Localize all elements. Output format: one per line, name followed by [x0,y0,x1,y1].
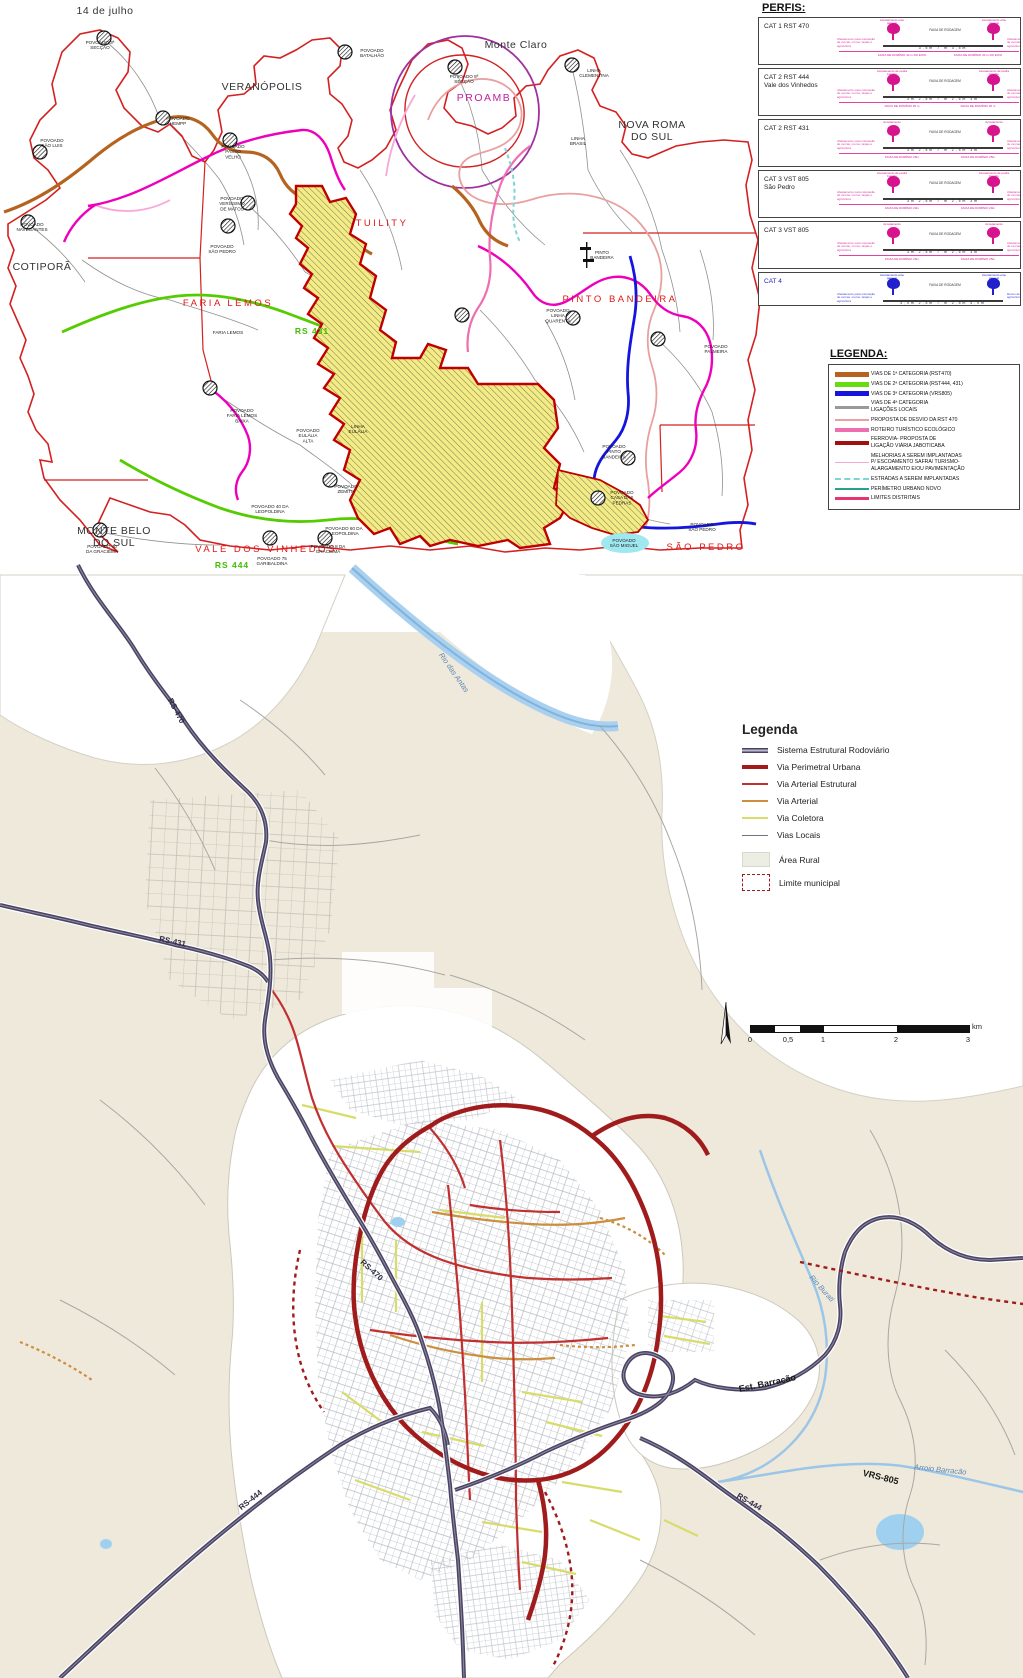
top-map [4,30,760,553]
map-label: POVOADOFARIA LEMOSBAIXA [227,408,257,423]
scale-tick: 0 [748,1035,752,1044]
bottom-legend-title: Legenda [742,722,962,737]
bottom-legend-item: Via Perimetral Urbana [742,762,962,772]
map-label: POVOADO 40DA GRACIEMA [86,544,119,554]
bottom-legend-item: Via Arterial [742,796,962,806]
legend-swatch-icon [833,406,871,409]
settlement-marker-icon [221,219,235,233]
map-label: POVOADOSÃO PEDRO [208,244,236,254]
legenda-item: VIAS DE 4ª CATEGORIA LIGAÇÕES LOCAIS [833,400,1015,413]
scale-bar-segments [750,1025,970,1033]
legend-swatch-icon [833,382,871,387]
map-label: POVOADOSÃO MIGUEL [610,538,639,548]
map-label: PROAMB [457,92,512,104]
legend-swatch-icon [833,419,871,421]
bottom-legend-item: Sistema Estrutural Rodoviário [742,745,962,755]
legenda-items: VIAS DE 1ª CATEGORIA (RST470)VIAS DE 2ª … [828,364,1020,510]
settlement-marker-icon [203,381,217,395]
legend-swatch-icon [833,372,871,377]
legend-swatch-icon [833,497,871,500]
legenda-item: VIAS DE 1ª CATEGORIA (RST470) [833,371,1015,378]
map-label: PINTO BANDEIRA [562,294,677,305]
settlement-marker-icon [651,332,665,346]
map-label: POVOADO 40 DALEOPOLDINA [251,504,289,514]
legenda-item: MELHORIAS A SEREM IMPLANTADAS P/ ESCOAME… [833,453,1015,473]
legenda-item: FERROVIA- PROPOSTA DE LIGAÇÃO VIÁRIA JAB… [833,436,1015,449]
map-label: COTIPORÃ [13,260,72,273]
map-label: LINHACLEMENTINA [579,68,610,78]
urban-area [290,186,570,548]
scale-bar: 00,5123 km [716,998,996,1048]
proamb-circle [391,36,539,188]
scale-tick: 2 [894,1035,898,1044]
bottom-legend-item: Vias Locais [742,830,962,840]
scale-unit: km [972,1022,982,1031]
bottom-legend-item: Via Arterial Estrutural [742,779,962,789]
bottom-legend-item: Área Rural [742,852,962,867]
north-arrow-icon [716,1000,736,1048]
map-label: 14 de julho [77,5,134,17]
map-label: POVOADOHEMPP [166,116,190,126]
map-label: POVOADOEULÁLIAALTA [296,428,320,443]
scale-tick: 3 [966,1035,970,1044]
map-label: TUILITY [356,218,409,229]
map-label: POVOADOBATALHÃO [360,48,384,58]
map-label: POVOADOVERÍSSIMODE MATOS [219,196,245,211]
map-label: LINHABRASIL [570,136,587,146]
scale-tick: 1 [821,1035,825,1044]
perfis-row: CAT 2 RST 444Vale dos VinhedosAfastament… [758,68,1021,116]
legend-swatch-icon [833,478,871,480]
bottom-legend-item: Via Coletora [742,813,962,823]
map-label: PINTOBANDEIRA [590,250,614,260]
map-label: POVOADOCASA DASPEDRAS [610,490,634,505]
legend-swatch-icon [833,462,871,464]
perfis-title: PERFIS: [762,2,1021,14]
roteiro-turistico [467,146,530,352]
map-label: POVOADO 60 DALEOPOLDINA [325,526,363,536]
legend-swatch-icon [833,391,871,396]
perfis-row: CAT 2 RST 431Afastamento para colocação … [758,119,1021,167]
map-label: FARIA LEMOS [183,298,273,309]
map-label: POVOADOSÃO PEDRO [688,522,716,532]
map-label: FARIA LEMOS [213,330,243,335]
settlement-marker-icon [565,58,579,72]
map-label: POVOADO 75GARIBALDINA [257,556,289,566]
settlement-marker-icon [263,531,277,545]
legenda-item: ROTEIRO TURÍSTICO ECOLÓGICO [833,427,1015,434]
map-label: VERANÓPOLIS [222,80,303,93]
settlement-marker-icon [455,308,469,322]
perfis-row: CAT 3 VST 805Afastamento para colocação … [758,221,1021,269]
scale-tick: 0,5 [783,1035,793,1044]
map-label: POVOADOSÃO LUIS [40,138,64,148]
map-label: Monte Claro [485,39,548,51]
settlement-marker-icon [448,60,462,74]
map-label: SÃO PEDRO [667,542,746,553]
legenda-title: LEGENDA: [830,348,1020,360]
perfis-row: CAT 3 VST 805São PedroAfastamento para c… [758,170,1021,218]
legend-swatch-icon [833,441,871,445]
perfis-rows: CAT 1 RST 470Afastamento para colocação … [758,17,1021,306]
perfis-row: CAT 1 RST 470Afastamento para colocação … [758,17,1021,65]
legend-swatch-icon [833,428,871,432]
legend-swatch-icon [833,488,871,491]
map-label: POVOADOZEMITH [334,484,358,494]
map-label: RS 444 [215,560,249,570]
legenda-panel: LEGENDA: VIAS DE 1ª CATEGORIA (RST470)VI… [828,348,1020,510]
legenda-item: ESTRADAS A SEREM IMPLANTADAS [833,476,1015,483]
map-label: POVOADOPALMEIRA [704,344,728,354]
legenda-item: VIAS DE 3ª CATEGORIA (VRS805) [833,391,1015,398]
map-label: POVOADONAVEGANTES [16,222,47,232]
map-label: NOVA ROMADO SUL [618,119,685,143]
bottom-legend-panel: Legenda Sistema Estrutural RodoviárioVia… [742,722,962,898]
bottom-legend-items: Sistema Estrutural RodoviárioVia Perimet… [742,745,962,891]
settlement-marker-icon [338,45,352,59]
perfis-row: CAT 4Afastamento para colocação de cerca… [758,272,1021,306]
map-label: RS 431 [295,326,329,336]
legenda-item: LIMITES DISTRITAIS [833,495,1015,502]
legenda-item: VIAS DE 2ª CATEGORIA (RST444, 431) [833,381,1015,388]
perfis-panel: PERFIS: CAT 1 RST 470Afastamento para co… [758,0,1021,306]
map-document: 14 de julhoPOVOADO 3ªSECÇÃOVERANÓPOLISPO… [0,0,1023,1678]
settlement-marker-icon [591,491,605,505]
legenda-item: PERÍMETRO URBANO NOVO [833,486,1015,493]
bottom-legend-item: Limite municipal [742,874,962,891]
legenda-item: PROPOSTA DE DESVIO DA RST 470 [833,417,1015,424]
